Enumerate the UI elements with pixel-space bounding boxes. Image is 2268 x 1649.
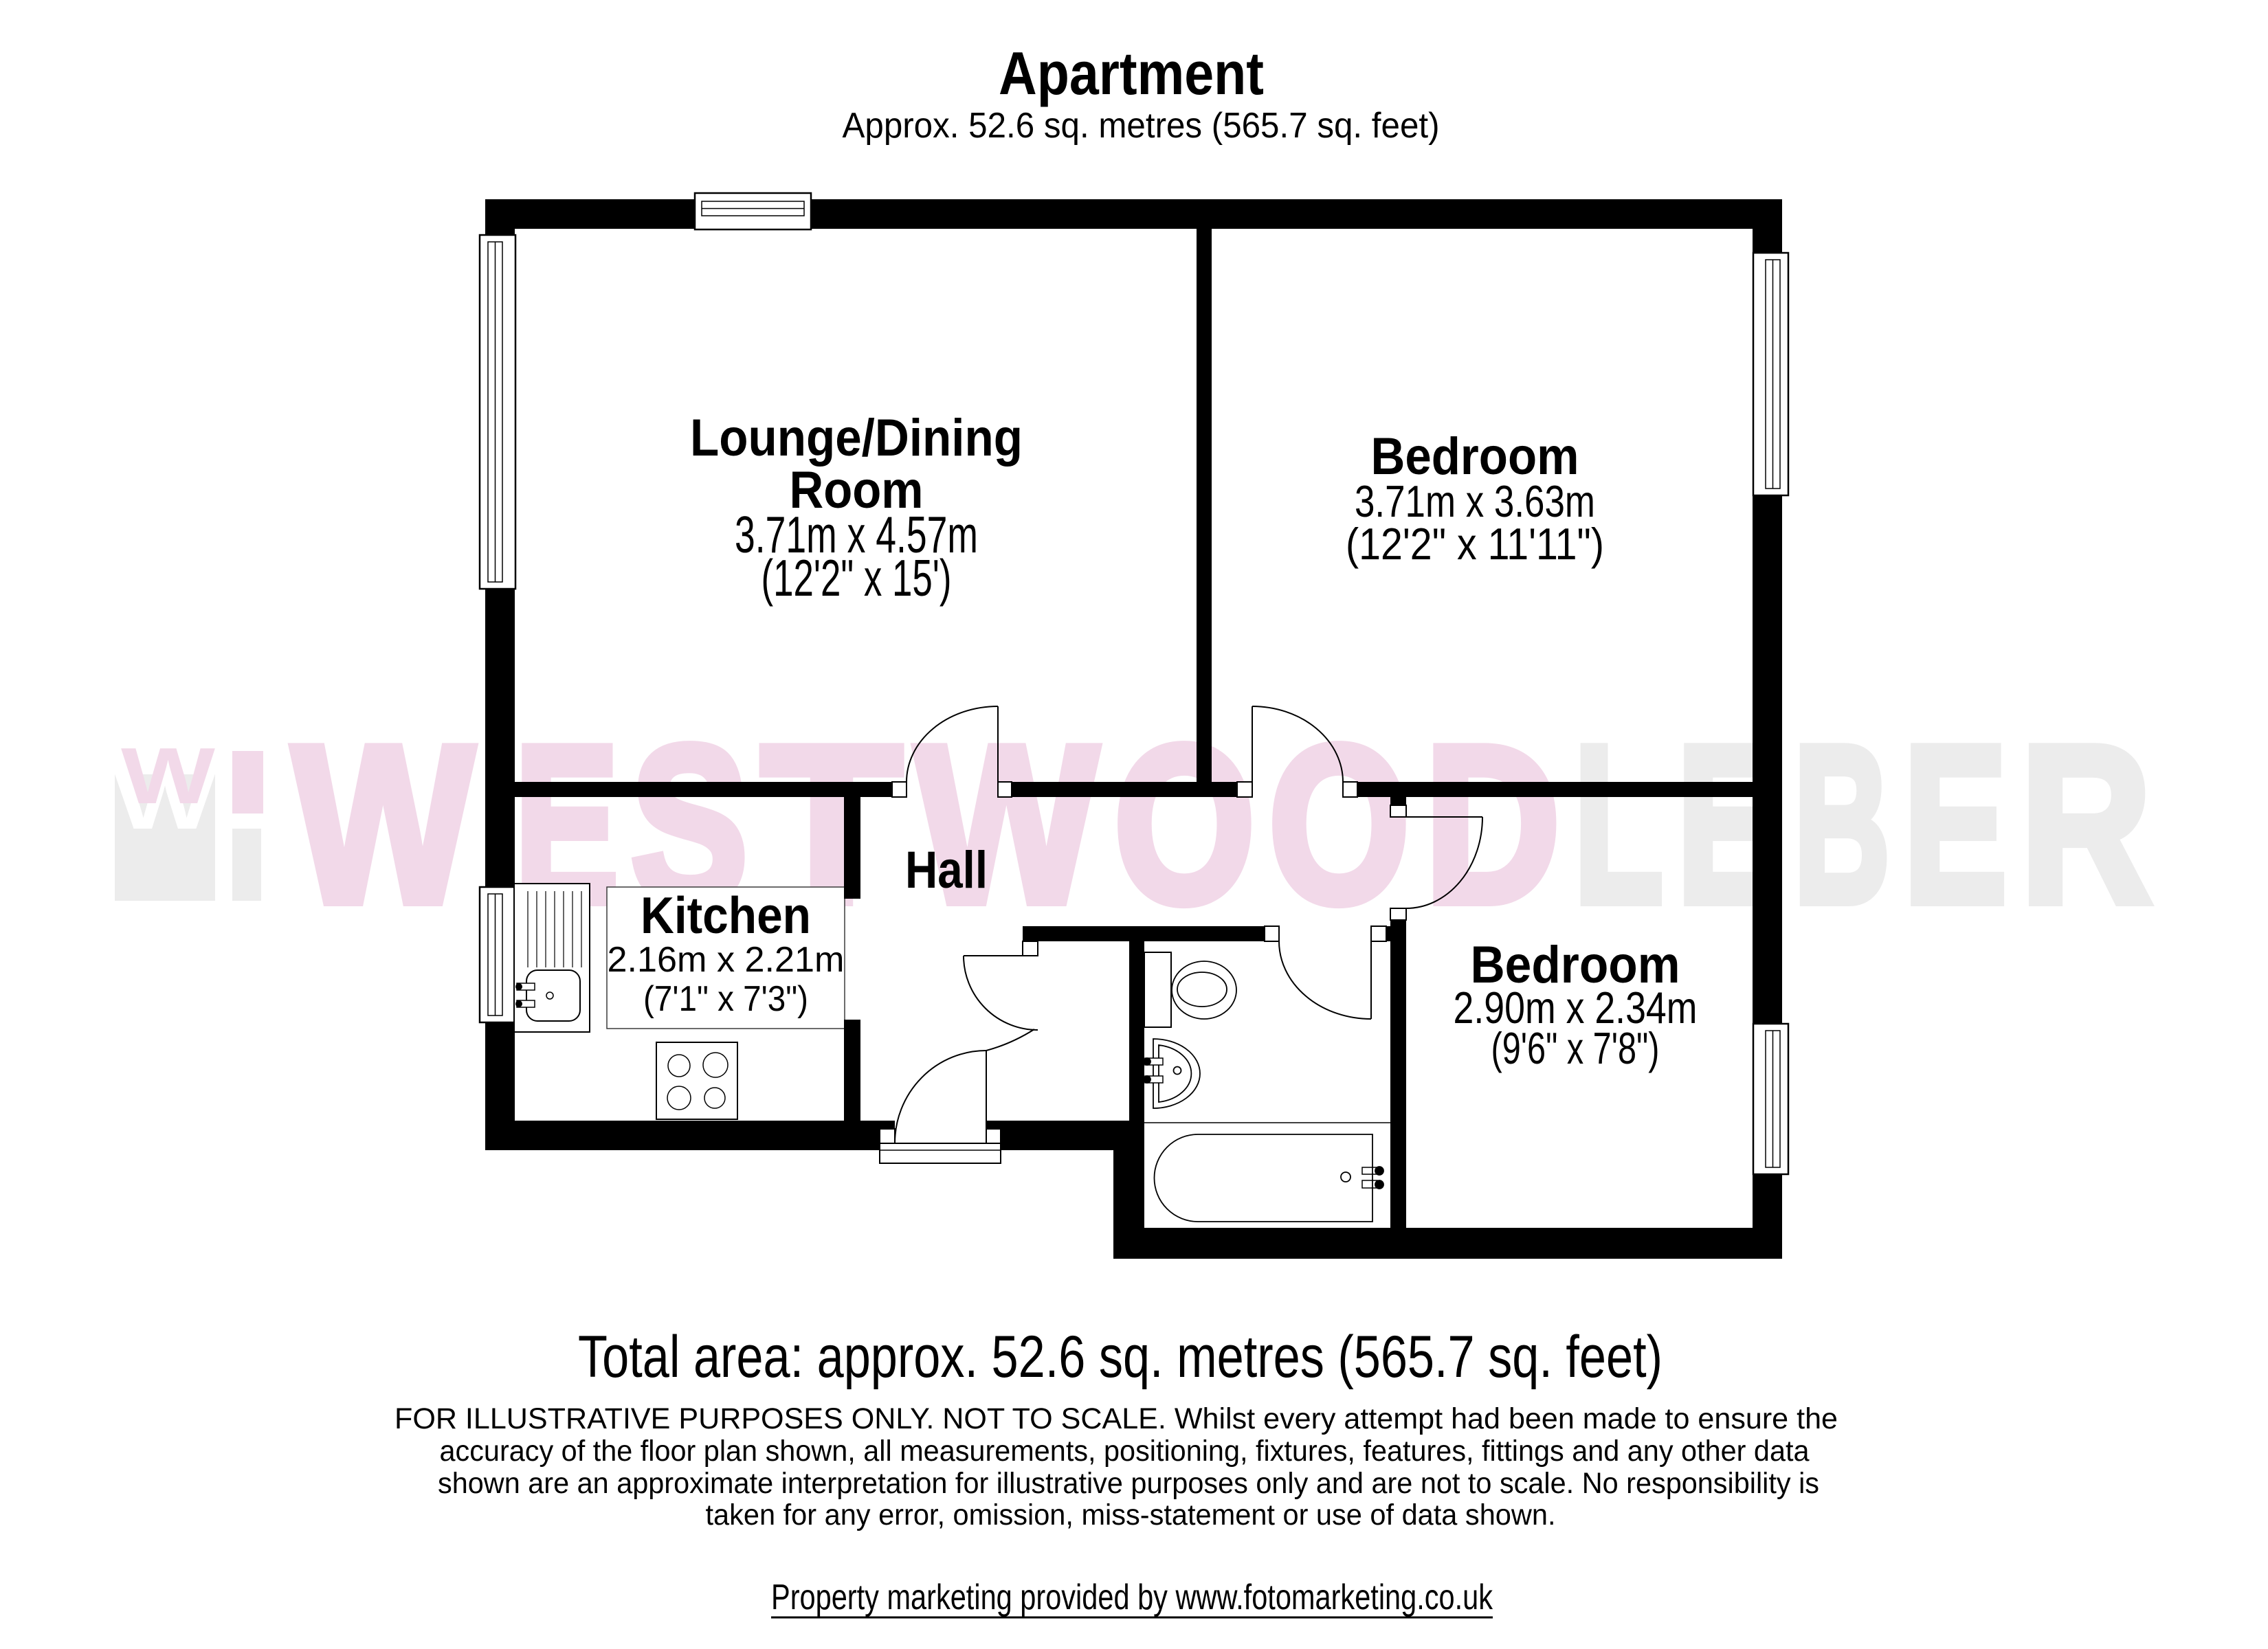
svg-text:(7'1" x 7'3"): (7'1" x 7'3") (643, 979, 808, 1019)
svg-text:FOR ILLUSTRATIVE PURPOSES ONLY: FOR ILLUSTRATIVE PURPOSES ONLY. NOT TO S… (394, 1402, 1838, 1435)
svg-text:Lounge/Dining: Lounge/Dining (690, 409, 1023, 467)
svg-text:taken for any error, omission,: taken for any error, omission, miss-stat… (706, 1499, 1556, 1532)
svg-text:Kitchen: Kitchen (641, 886, 811, 944)
svg-text:shown are an approximate inter: shown are an approximate interpretation … (438, 1467, 1819, 1500)
svg-text:(12'2" x 15'): (12'2" x 15') (761, 549, 952, 607)
svg-text:Hall: Hall (905, 841, 988, 899)
svg-text:Apartment: Apartment (999, 39, 1264, 107)
svg-text:O: O (1269, 699, 1410, 949)
svg-text:L: L (1574, 699, 1663, 949)
svg-text:W: W (915, 699, 1100, 949)
svg-text:Approx. 52.6 sq. metres (565.7: Approx. 52.6 sq. metres (565.7 sq. feet) (843, 106, 1440, 146)
svg-text:D: D (1425, 699, 1560, 949)
svg-text:W: W (121, 731, 216, 820)
svg-text:R: R (2021, 699, 2151, 949)
svg-text:W: W (293, 699, 476, 949)
svg-text:(9'6" x 7'8"): (9'6" x 7'8") (1491, 1023, 1660, 1073)
svg-text:E: E (1904, 699, 2007, 949)
svg-text:B: B (1794, 699, 1890, 949)
svg-text:O: O (1114, 699, 1255, 949)
svg-text:Total area: approx. 52.6 sq. m: Total area: approx. 52.6 sq. metres (565… (578, 1324, 1663, 1390)
svg-text:2.16m x 2.21m: 2.16m x 2.21m (608, 940, 845, 980)
svg-text:accuracy of the floor plan sho: accuracy of the floor plan shown, all me… (440, 1435, 1810, 1468)
svg-text:Property marketing provided by: Property marketing provided by www.fotom… (771, 1578, 1493, 1617)
svg-text:(12'2" x 11'11"): (12'2" x 11'11") (1346, 519, 1604, 569)
